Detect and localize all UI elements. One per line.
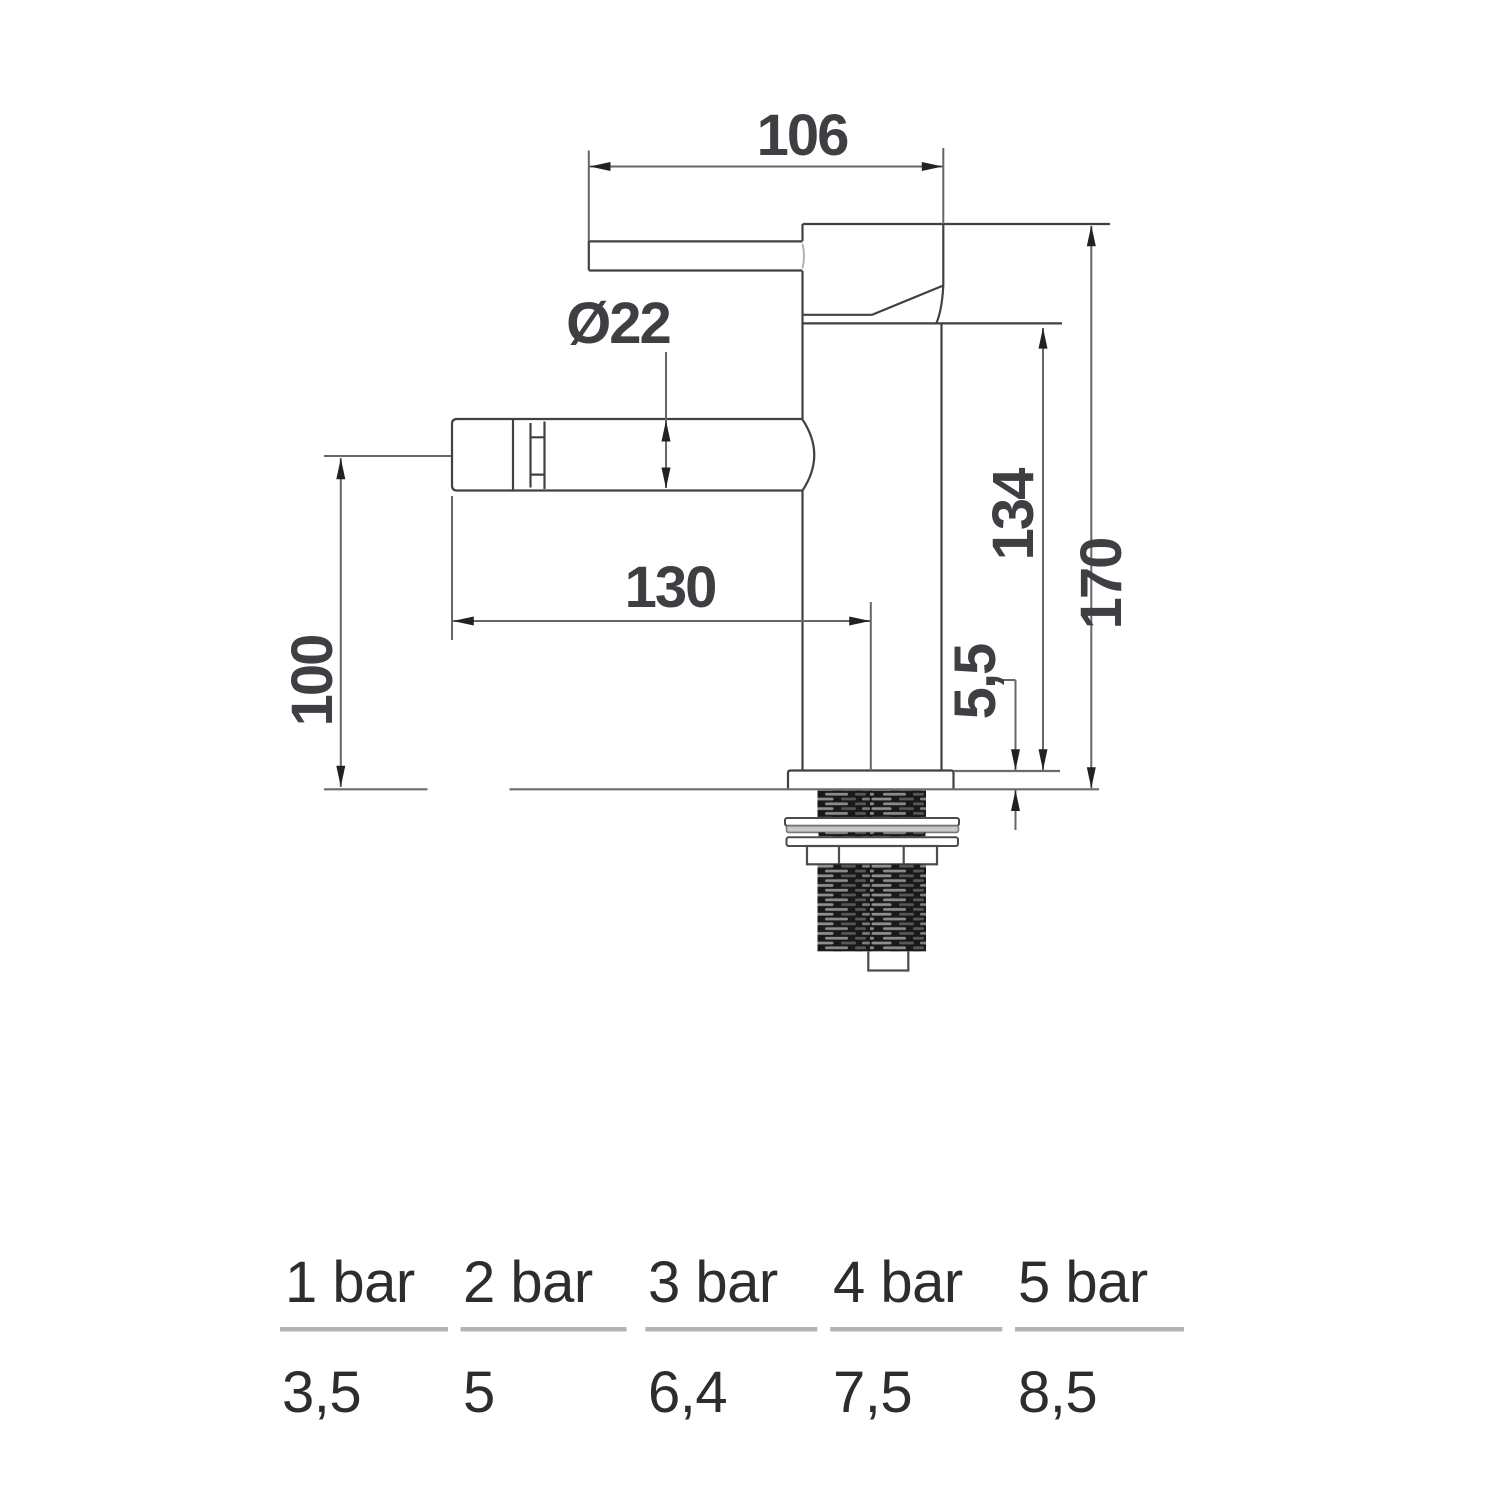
svg-text:130: 130: [625, 555, 716, 620]
svg-text:6,4: 6,4: [648, 1360, 727, 1425]
svg-text:1 bar: 1 bar: [285, 1250, 415, 1315]
svg-text:4 bar: 4 bar: [833, 1250, 963, 1315]
svg-text:2 bar: 2 bar: [463, 1250, 593, 1315]
svg-text:8,5: 8,5: [1018, 1360, 1097, 1425]
svg-text:100: 100: [280, 636, 345, 727]
svg-text:106: 106: [757, 103, 849, 168]
svg-text:134: 134: [981, 468, 1046, 561]
svg-text:170: 170: [1069, 539, 1134, 630]
svg-text:3 bar: 3 bar: [648, 1250, 778, 1315]
svg-text:5 bar: 5 bar: [1018, 1250, 1148, 1315]
svg-text:5: 5: [463, 1360, 495, 1425]
svg-text:3,5: 3,5: [282, 1360, 361, 1425]
svg-text:Ø22: Ø22: [566, 291, 670, 356]
svg-text:5,5: 5,5: [943, 644, 1008, 719]
svg-text:7,5: 7,5: [833, 1360, 912, 1425]
